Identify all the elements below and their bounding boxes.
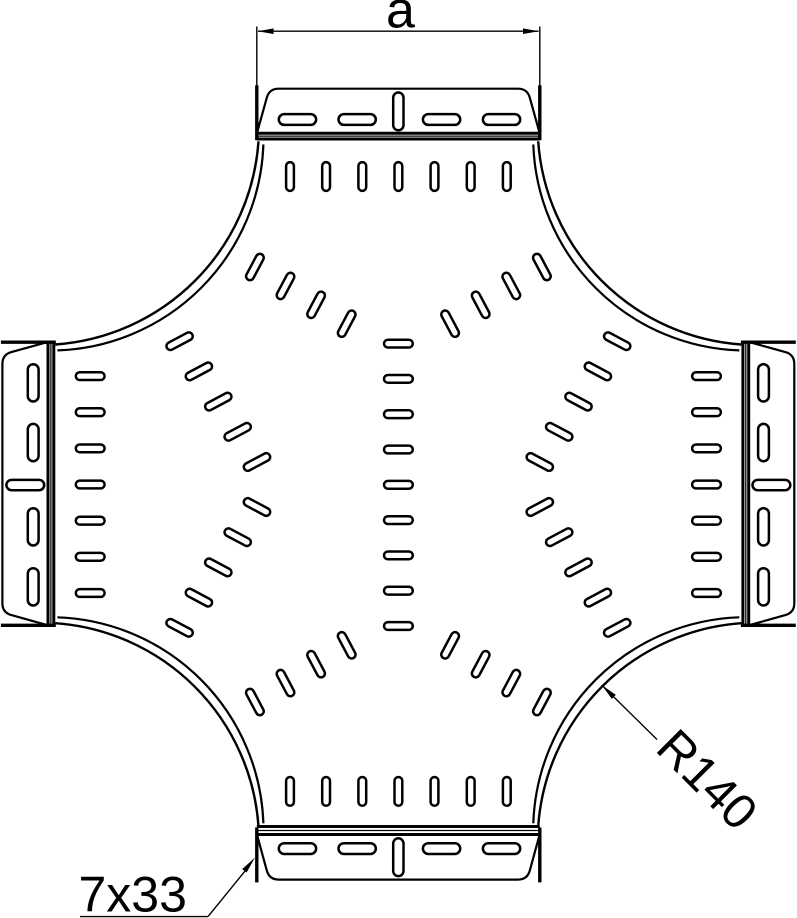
svg-text:7x33: 7x33 [79, 867, 187, 918]
svg-text:R140: R140 [646, 720, 767, 841]
svg-text:a: a [386, 0, 415, 40]
